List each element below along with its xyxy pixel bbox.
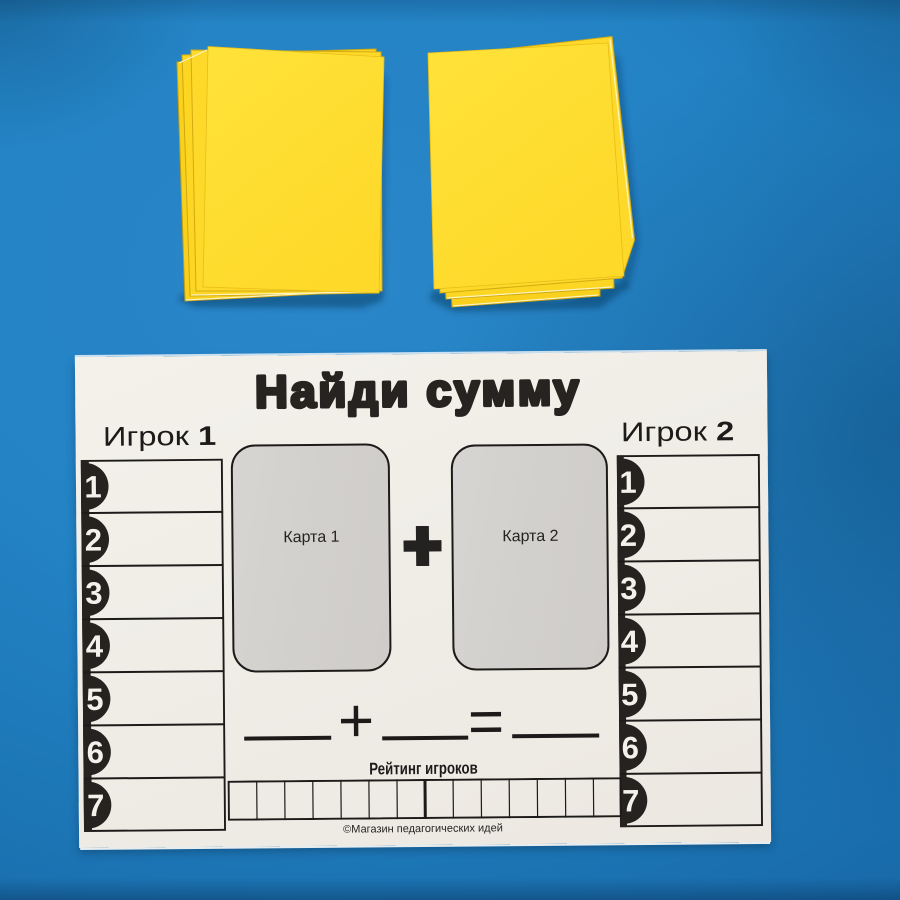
svg-text:1: 1 <box>84 469 102 504</box>
svg-text:5: 5 <box>621 677 639 712</box>
svg-text:4: 4 <box>621 624 639 659</box>
svg-text:3: 3 <box>620 571 638 606</box>
svg-text:Найди сумму: Найди сумму <box>255 364 582 418</box>
svg-text:2: 2 <box>620 518 638 553</box>
svg-text:7: 7 <box>622 783 640 818</box>
svg-text:5: 5 <box>86 682 104 717</box>
svg-text:2: 2 <box>85 522 103 557</box>
svg-text:6: 6 <box>87 735 105 770</box>
svg-text:3: 3 <box>85 576 103 611</box>
svg-text:4: 4 <box>86 629 104 664</box>
svg-text:6: 6 <box>622 730 640 765</box>
svg-text:7: 7 <box>87 788 105 823</box>
svg-text:1: 1 <box>619 465 637 500</box>
